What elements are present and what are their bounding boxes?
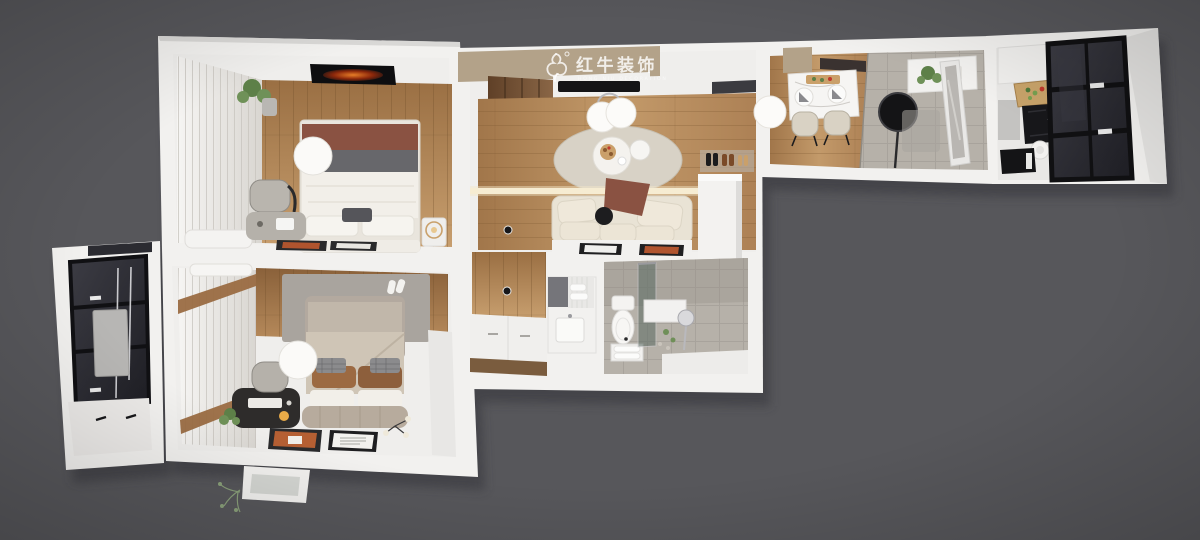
apartment-3d-floorplan: 红牛装饰 HONG NIU DECORATION bbox=[0, 0, 1200, 540]
watermark-tagline: HONG NIU DECORATION bbox=[578, 76, 668, 82]
floor-plan-render: 红牛装饰 HONG NIU DECORATION bbox=[0, 0, 1200, 540]
watermark-brand: 红牛装饰 bbox=[576, 55, 658, 76]
